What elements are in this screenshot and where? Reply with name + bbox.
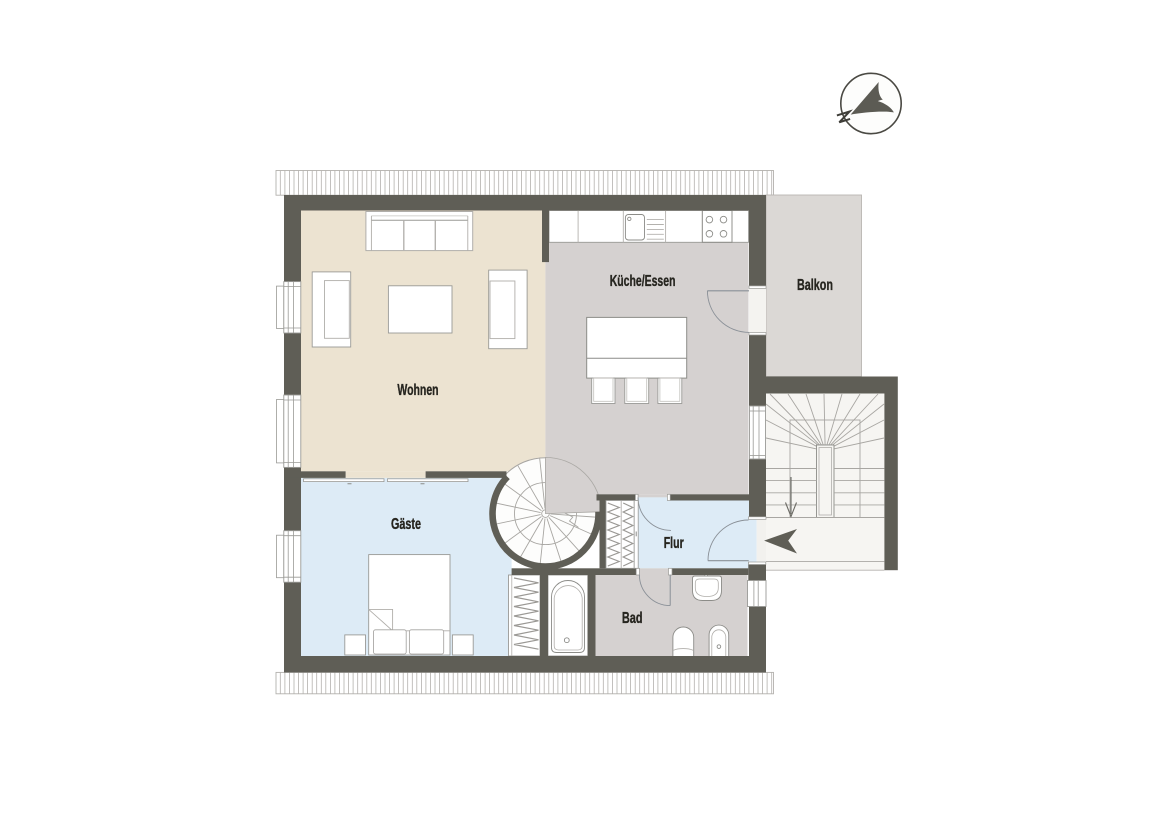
svg-text:Balkon: Balkon: [797, 277, 833, 294]
svg-text:Küche/Essen: Küche/Essen: [610, 273, 676, 290]
svg-text:Bad: Bad: [622, 610, 643, 627]
svg-text:Gäste: Gäste: [391, 516, 421, 533]
svg-text:Flur: Flur: [664, 535, 684, 552]
svg-text:Wohnen: Wohnen: [397, 382, 438, 399]
